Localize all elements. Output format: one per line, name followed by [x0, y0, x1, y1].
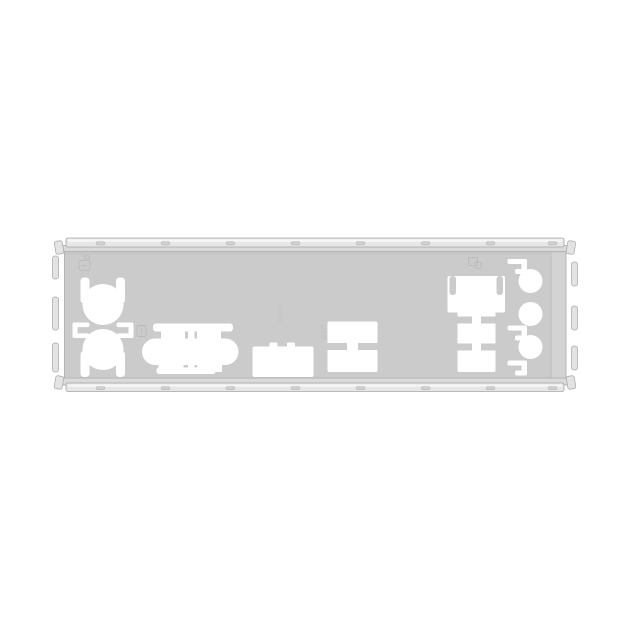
right-edge-tabs — [572, 262, 578, 370]
bottom-left-corner-tab — [54, 375, 64, 389]
bottom-right-corner-tab — [566, 375, 576, 389]
top-left-corner-tab — [54, 240, 64, 254]
usb-retaining-finger-right — [358, 343, 378, 350]
usb-retaining-finger — [458, 344, 473, 351]
usb-retaining-finger-left — [328, 343, 348, 350]
plate-face-top-shadow — [66, 253, 566, 255]
audio-jack-cutouts — [519, 269, 543, 359]
usb-retaining-finger — [481, 344, 496, 351]
lan-spring-hook-right — [497, 276, 504, 295]
lan-spring-hook-left — [450, 276, 457, 295]
product-photo: HDMI USB — [0, 0, 630, 630]
usb-stack-cutout — [328, 322, 378, 373]
hdmi-port-cutout — [253, 343, 314, 378]
io-shield-photo: HDMI USB — [0, 0, 630, 630]
left-edge-tabs — [53, 256, 59, 372]
plate-face-right-fold-light — [551, 253, 566, 378]
usb-retaining-finger — [458, 317, 473, 324]
embossed-label-usb: USB — [319, 324, 327, 340]
embossed-label-hdmi: HDMI — [276, 303, 284, 324]
usb-retaining-finger — [481, 317, 496, 324]
top-right-corner-tab — [566, 240, 576, 254]
audio-jack-cutout-2 — [519, 302, 543, 326]
io-shield-plate: HDMI USB — [53, 238, 578, 392]
